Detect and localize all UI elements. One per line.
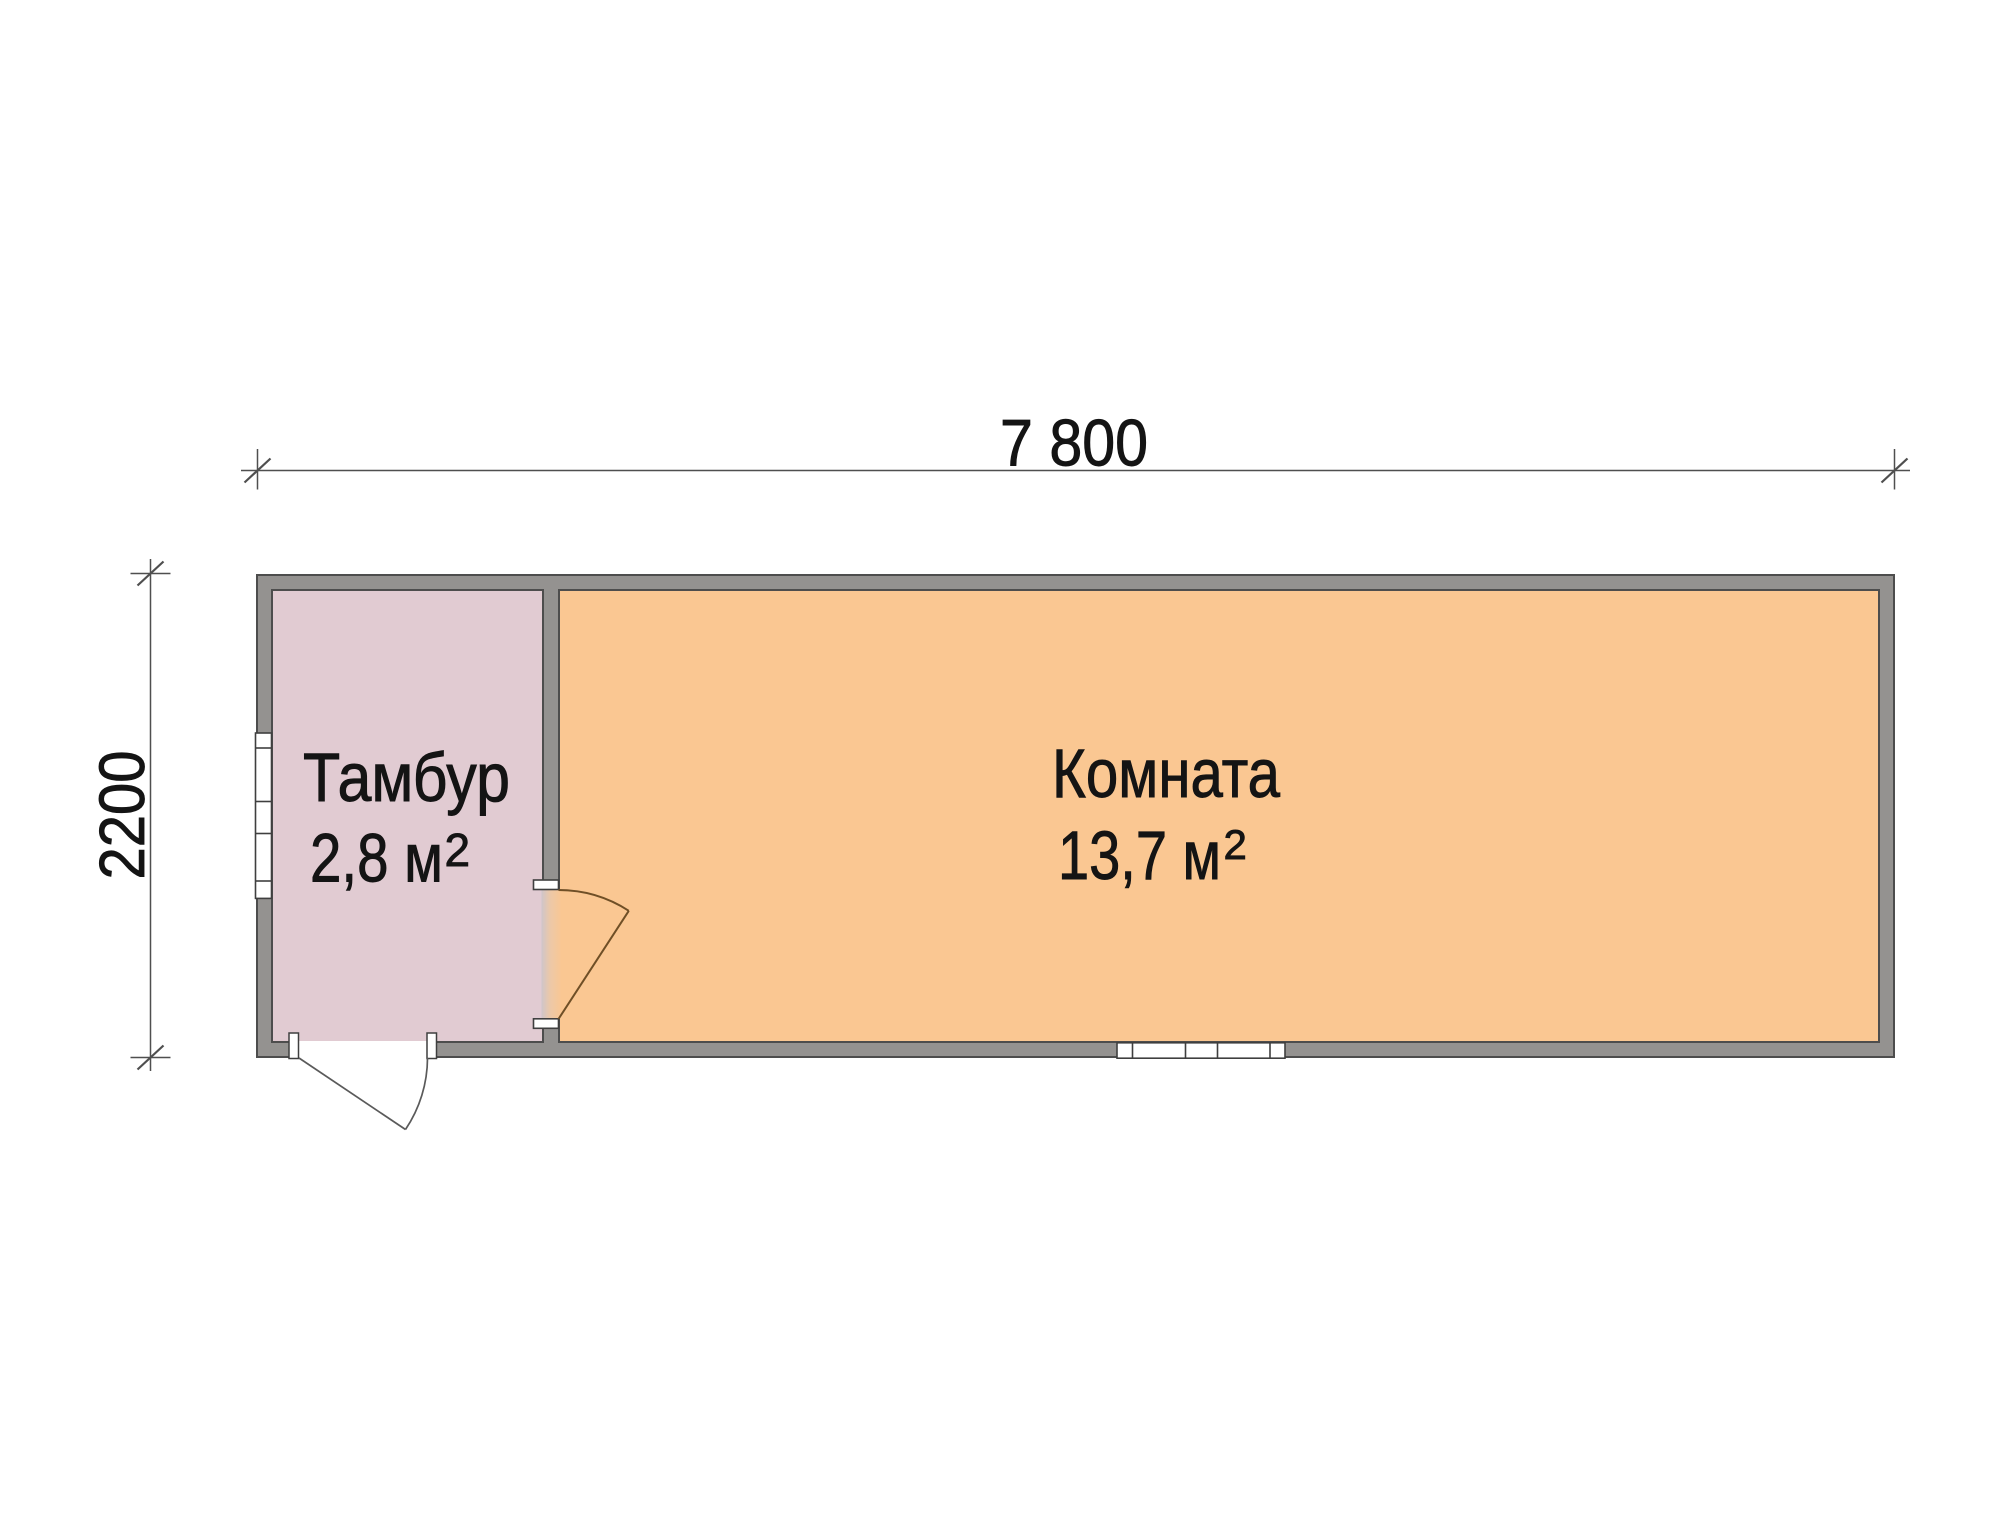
svg-text:13,7 м: 13,7 м: [1058, 817, 1221, 894]
svg-text:2,8 м: 2,8 м: [310, 820, 443, 897]
svg-text:2: 2: [1224, 821, 1247, 868]
svg-text:Тамбур: Тамбур: [303, 739, 510, 816]
svg-text:2: 2: [445, 824, 471, 876]
svg-text:7 800: 7 800: [1000, 406, 1148, 480]
svg-text:Комната: Комната: [1052, 735, 1281, 812]
svg-text:2200: 2200: [86, 751, 158, 880]
